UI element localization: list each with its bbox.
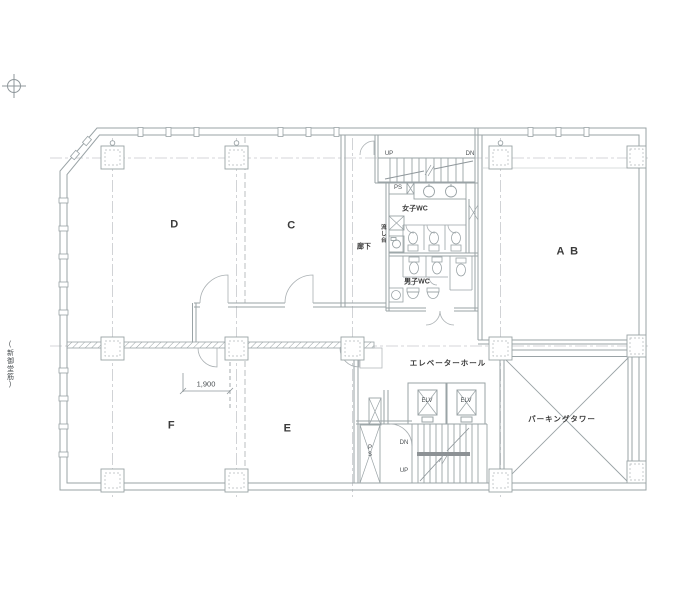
grid-lines: [50, 138, 648, 497]
room-c-label: C: [287, 221, 296, 232]
elevators: [408, 383, 485, 424]
corridor-label: 廊下: [357, 244, 371, 251]
dimension-1900-label: 1,900: [197, 380, 216, 388]
wc-men-fixtures: [389, 256, 472, 302]
ps-bottom-label: PS: [367, 445, 373, 459]
stairs-top: [378, 158, 475, 182]
elevator-hall-label: エレベーターホール: [410, 359, 487, 367]
structural-columns: [101, 141, 646, 492]
room-d-label: D: [170, 220, 179, 231]
ps-bottom-shafts: [360, 398, 381, 483]
womens-wc-label: 女子WC: [402, 206, 428, 213]
elv-right-label: ELV: [461, 398, 472, 404]
sink-unit-label: 流し台: [379, 224, 385, 244]
room-e-label: E: [284, 424, 293, 435]
survey-crosshair-icon: [2, 74, 26, 98]
wc-women-fixtures: [403, 225, 466, 253]
mens-wc-label: 男子WC: [404, 279, 430, 286]
room-ab-label: A B: [556, 247, 579, 258]
wall-ticks: [59, 128, 589, 458]
interior-walls: [193, 135, 647, 483]
sink-unit: [389, 216, 404, 252]
stairs-bottom: [412, 424, 487, 483]
stair-bottom-up-label: UP: [400, 468, 408, 474]
floorplan-page: (新御堂筋) D C A B F E UP DN PS 女子WC 流し台 廊下 …: [0, 0, 681, 597]
room-f-label: F: [168, 421, 176, 432]
stair-bottom-dn-label: DN: [400, 440, 409, 446]
stair-top-dn-label: DN: [466, 151, 475, 157]
elv-left-label: ELV: [422, 398, 433, 404]
stair-top-up-label: UP: [385, 151, 393, 157]
ps-top-label: PS: [394, 185, 402, 191]
floorplan-drawing: [0, 0, 681, 597]
parking-tower-label: パーキングタワー: [528, 415, 596, 423]
street-name-label: (新御堂筋): [7, 341, 14, 389]
outer-walls: [60, 128, 646, 490]
